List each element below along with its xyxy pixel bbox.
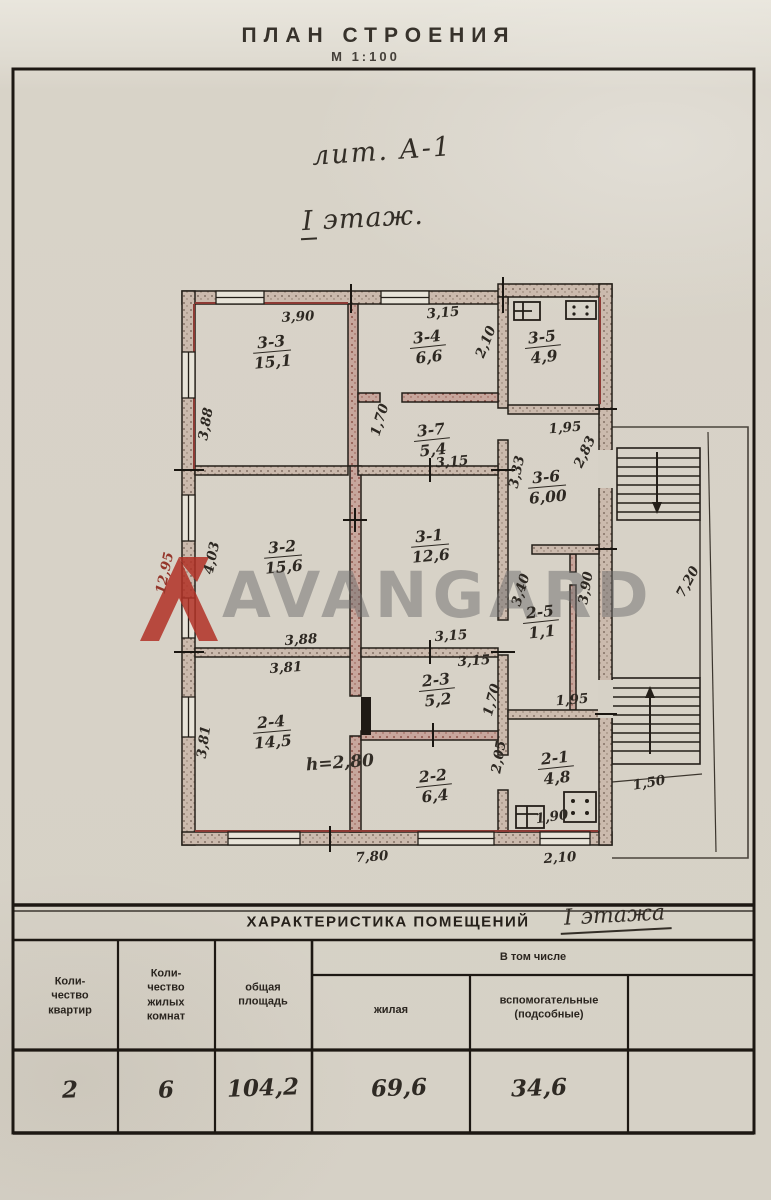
door-leaf bbox=[361, 697, 371, 735]
suffix-word: этажа bbox=[580, 900, 666, 929]
col-header-auxiliary: вспомогательные (подсобные) bbox=[500, 994, 599, 1023]
col-header-living-area: жилая bbox=[374, 1003, 408, 1017]
col-header-living-rooms: Коли- чество жилых комнат bbox=[147, 966, 185, 1023]
windows bbox=[182, 291, 590, 845]
gas-stove-icon bbox=[566, 301, 596, 319]
floor-annotation: Iэтаж. bbox=[299, 200, 424, 237]
porch-outline bbox=[612, 427, 748, 858]
stairs-down-arrow bbox=[652, 452, 662, 514]
cell-apartments: 2 bbox=[62, 1076, 79, 1104]
window-top-1 bbox=[216, 291, 264, 304]
table-title-floor-suffix: Iэтажа bbox=[559, 900, 672, 935]
cell-auxiliary-area: 34,6 bbox=[511, 1074, 568, 1103]
window-top-2 bbox=[381, 291, 429, 304]
table-title: ХАРАКТЕРИСТИКА ПОМЕЩЕНИЙ bbox=[246, 914, 529, 931]
furnace-icon bbox=[514, 302, 540, 320]
col-header-total-area: общая площадь bbox=[238, 981, 287, 1010]
group-header-including: В том числе bbox=[500, 950, 566, 964]
junction-ticks bbox=[174, 277, 617, 852]
stairs-up-arrow bbox=[645, 686, 655, 754]
plan-drawing bbox=[0, 0, 771, 1200]
scanned-floorplan-page: { "page": { "title": "ПЛАН СТРОЕНИЯ", "s… bbox=[0, 0, 771, 1200]
furnace-icon-2 bbox=[516, 806, 544, 828]
floor-roman-numeral: I bbox=[299, 205, 316, 240]
gas-stove-icon-2 bbox=[564, 792, 596, 822]
window-left-4 bbox=[182, 697, 195, 737]
window-bottom-3 bbox=[540, 832, 590, 845]
window-left-3 bbox=[182, 598, 195, 638]
window-left-2 bbox=[182, 495, 195, 541]
walls bbox=[182, 284, 612, 845]
window-bottom-1 bbox=[228, 832, 300, 845]
window-left-1 bbox=[182, 352, 195, 398]
wall-red-accents bbox=[194, 297, 600, 831]
floor-word: этаж. bbox=[322, 200, 425, 236]
cell-living-rooms: 6 bbox=[158, 1076, 175, 1104]
col-header-apartments: Коли- чество квартир bbox=[48, 975, 92, 1018]
window-bottom-2 bbox=[418, 832, 494, 845]
suffix-roman-numeral: I bbox=[561, 905, 575, 932]
cell-living-area: 69,6 bbox=[371, 1074, 428, 1103]
cell-total-area: 104,2 bbox=[227, 1073, 300, 1102]
appliance-symbols bbox=[514, 301, 596, 828]
stairs-bottom-flight bbox=[612, 678, 700, 764]
